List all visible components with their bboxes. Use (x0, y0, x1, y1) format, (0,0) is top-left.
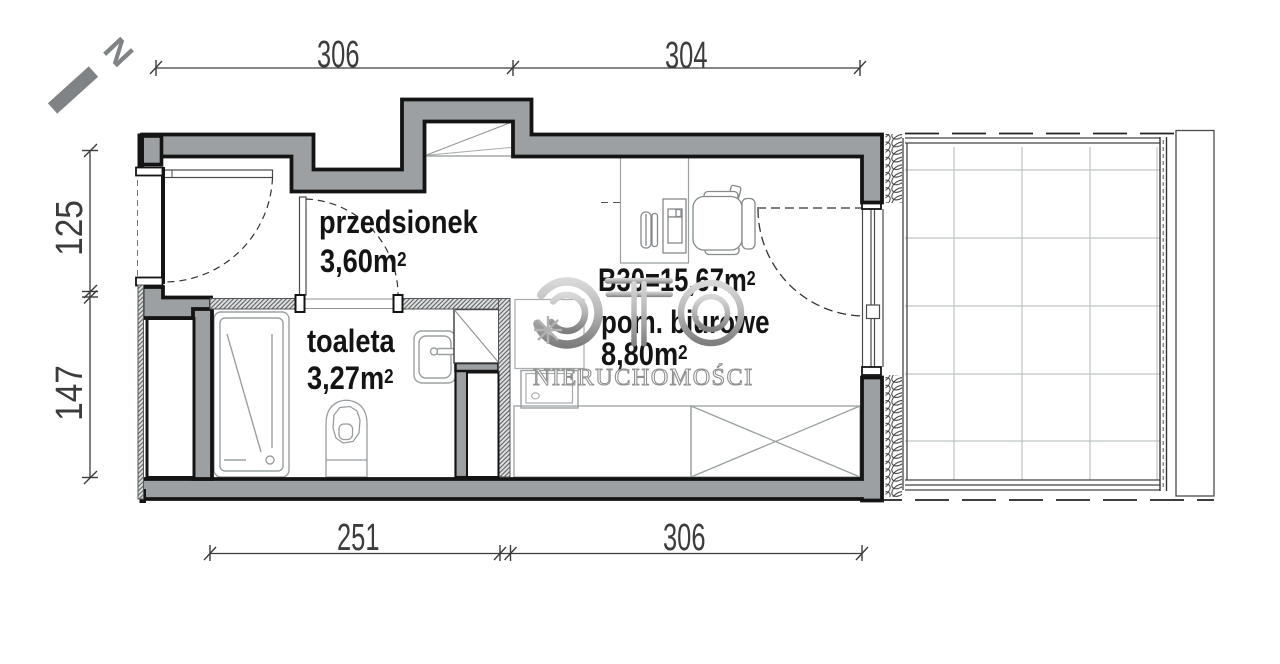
svg-text:N: N (96, 31, 141, 75)
